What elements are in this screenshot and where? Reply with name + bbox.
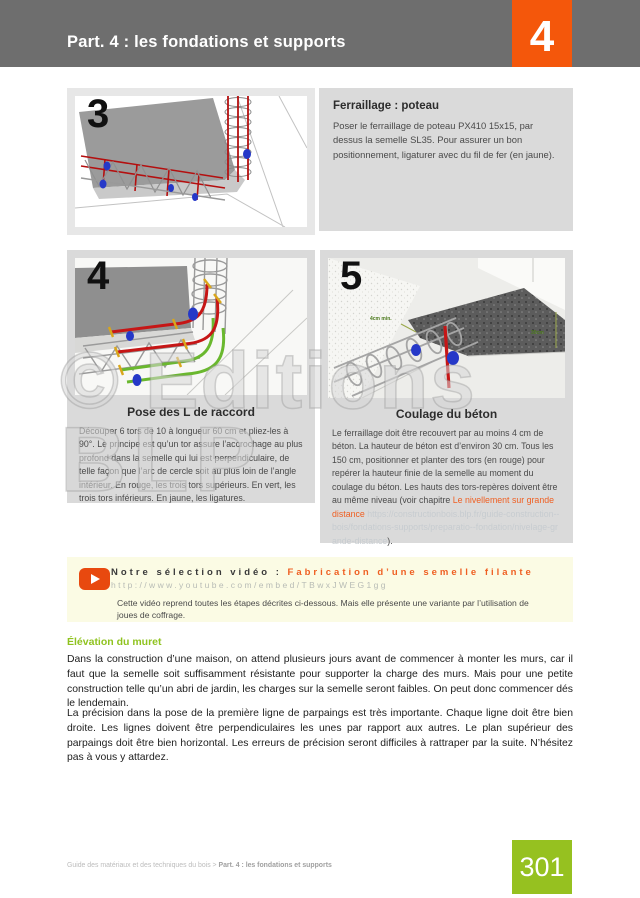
book-page: Part. 4 : les fondations et supports 4: [0, 0, 640, 898]
video-callout: Notre sélection vidéo : Fabrication d’un…: [67, 557, 573, 622]
step5-panel: 5 4cm min. 30cm Coulage du béton Le ferr…: [320, 250, 573, 543]
step4-body: Découper 6 tors de 10 à longueur 60 cm e…: [67, 425, 315, 506]
youtube-play-icon[interactable]: [79, 568, 110, 590]
video-url[interactable]: http://www.youtube.com/embed/TBwxJWEG1gg: [111, 580, 388, 590]
page-number-badge: 301: [512, 840, 572, 894]
breadcrumb-guide: Guide des matériaux et des techniques du…: [67, 862, 219, 869]
step3-image-panel: 3: [67, 88, 315, 235]
breadcrumb-part: Part. 4 : les fondations et supports: [219, 862, 332, 869]
step3-body: Poser le ferraillage de poteau PX410 15x…: [333, 119, 559, 162]
step5-body: Le ferraillage doit être recouvert par a…: [320, 427, 573, 548]
step-number: 5: [340, 258, 362, 299]
step-number: 4: [87, 258, 109, 299]
video-title[interactable]: Fabrication d’une semelle filante: [288, 567, 534, 578]
step5-body-end: ).: [387, 536, 392, 546]
step4-panel: 4 Pose des L de raccord Découper 6 tors …: [67, 250, 315, 503]
page-header: Part. 4 : les fondations et supports 4: [0, 0, 640, 67]
rebar-column-illustration: [75, 96, 307, 227]
step-number: 3: [87, 96, 109, 137]
step5-illustration: 5 4cm min. 30cm: [328, 258, 565, 398]
section-paragraph-1: Dans la construction d’une maison, on at…: [67, 653, 573, 712]
step5-body-text: Le ferraillage doit être recouvert par a…: [332, 428, 557, 505]
page-title: Part. 4 : les fondations et supports: [67, 33, 346, 52]
cover-dimension-label: 4cm min.: [370, 316, 392, 322]
step4-illustration: 4: [75, 258, 307, 395]
step5-caption: Coulage du béton: [320, 407, 573, 421]
breadcrumb: Guide des matériaux et des techniques du…: [67, 862, 332, 869]
corner-l-bars-illustration: [75, 258, 307, 395]
chapter-link-url[interactable]: https://constructionbois.blp.fr/guide-co…: [332, 509, 559, 546]
height-dimension-label: 30cm: [531, 330, 544, 336]
step3-heading: Ferraillage : poteau: [333, 100, 559, 112]
video-label-text: Notre sélection vidéo :: [111, 567, 282, 578]
step3-text-panel: Ferraillage : poteau Poser le ferraillag…: [319, 88, 573, 231]
section-heading: Élévation du muret: [67, 636, 162, 648]
section-paragraph-2: La précision dans la pose de la première…: [67, 707, 573, 766]
part-number-badge: 4: [512, 0, 572, 67]
video-description: Cette vidéo reprend toutes les étapes dé…: [117, 597, 547, 621]
concrete-pour-illustration: [328, 258, 565, 398]
step4-caption: Pose des L de raccord: [67, 405, 315, 419]
video-label: Notre sélection vidéo : Fabrication d’un…: [111, 567, 534, 578]
step3-illustration: 3: [75, 96, 307, 227]
